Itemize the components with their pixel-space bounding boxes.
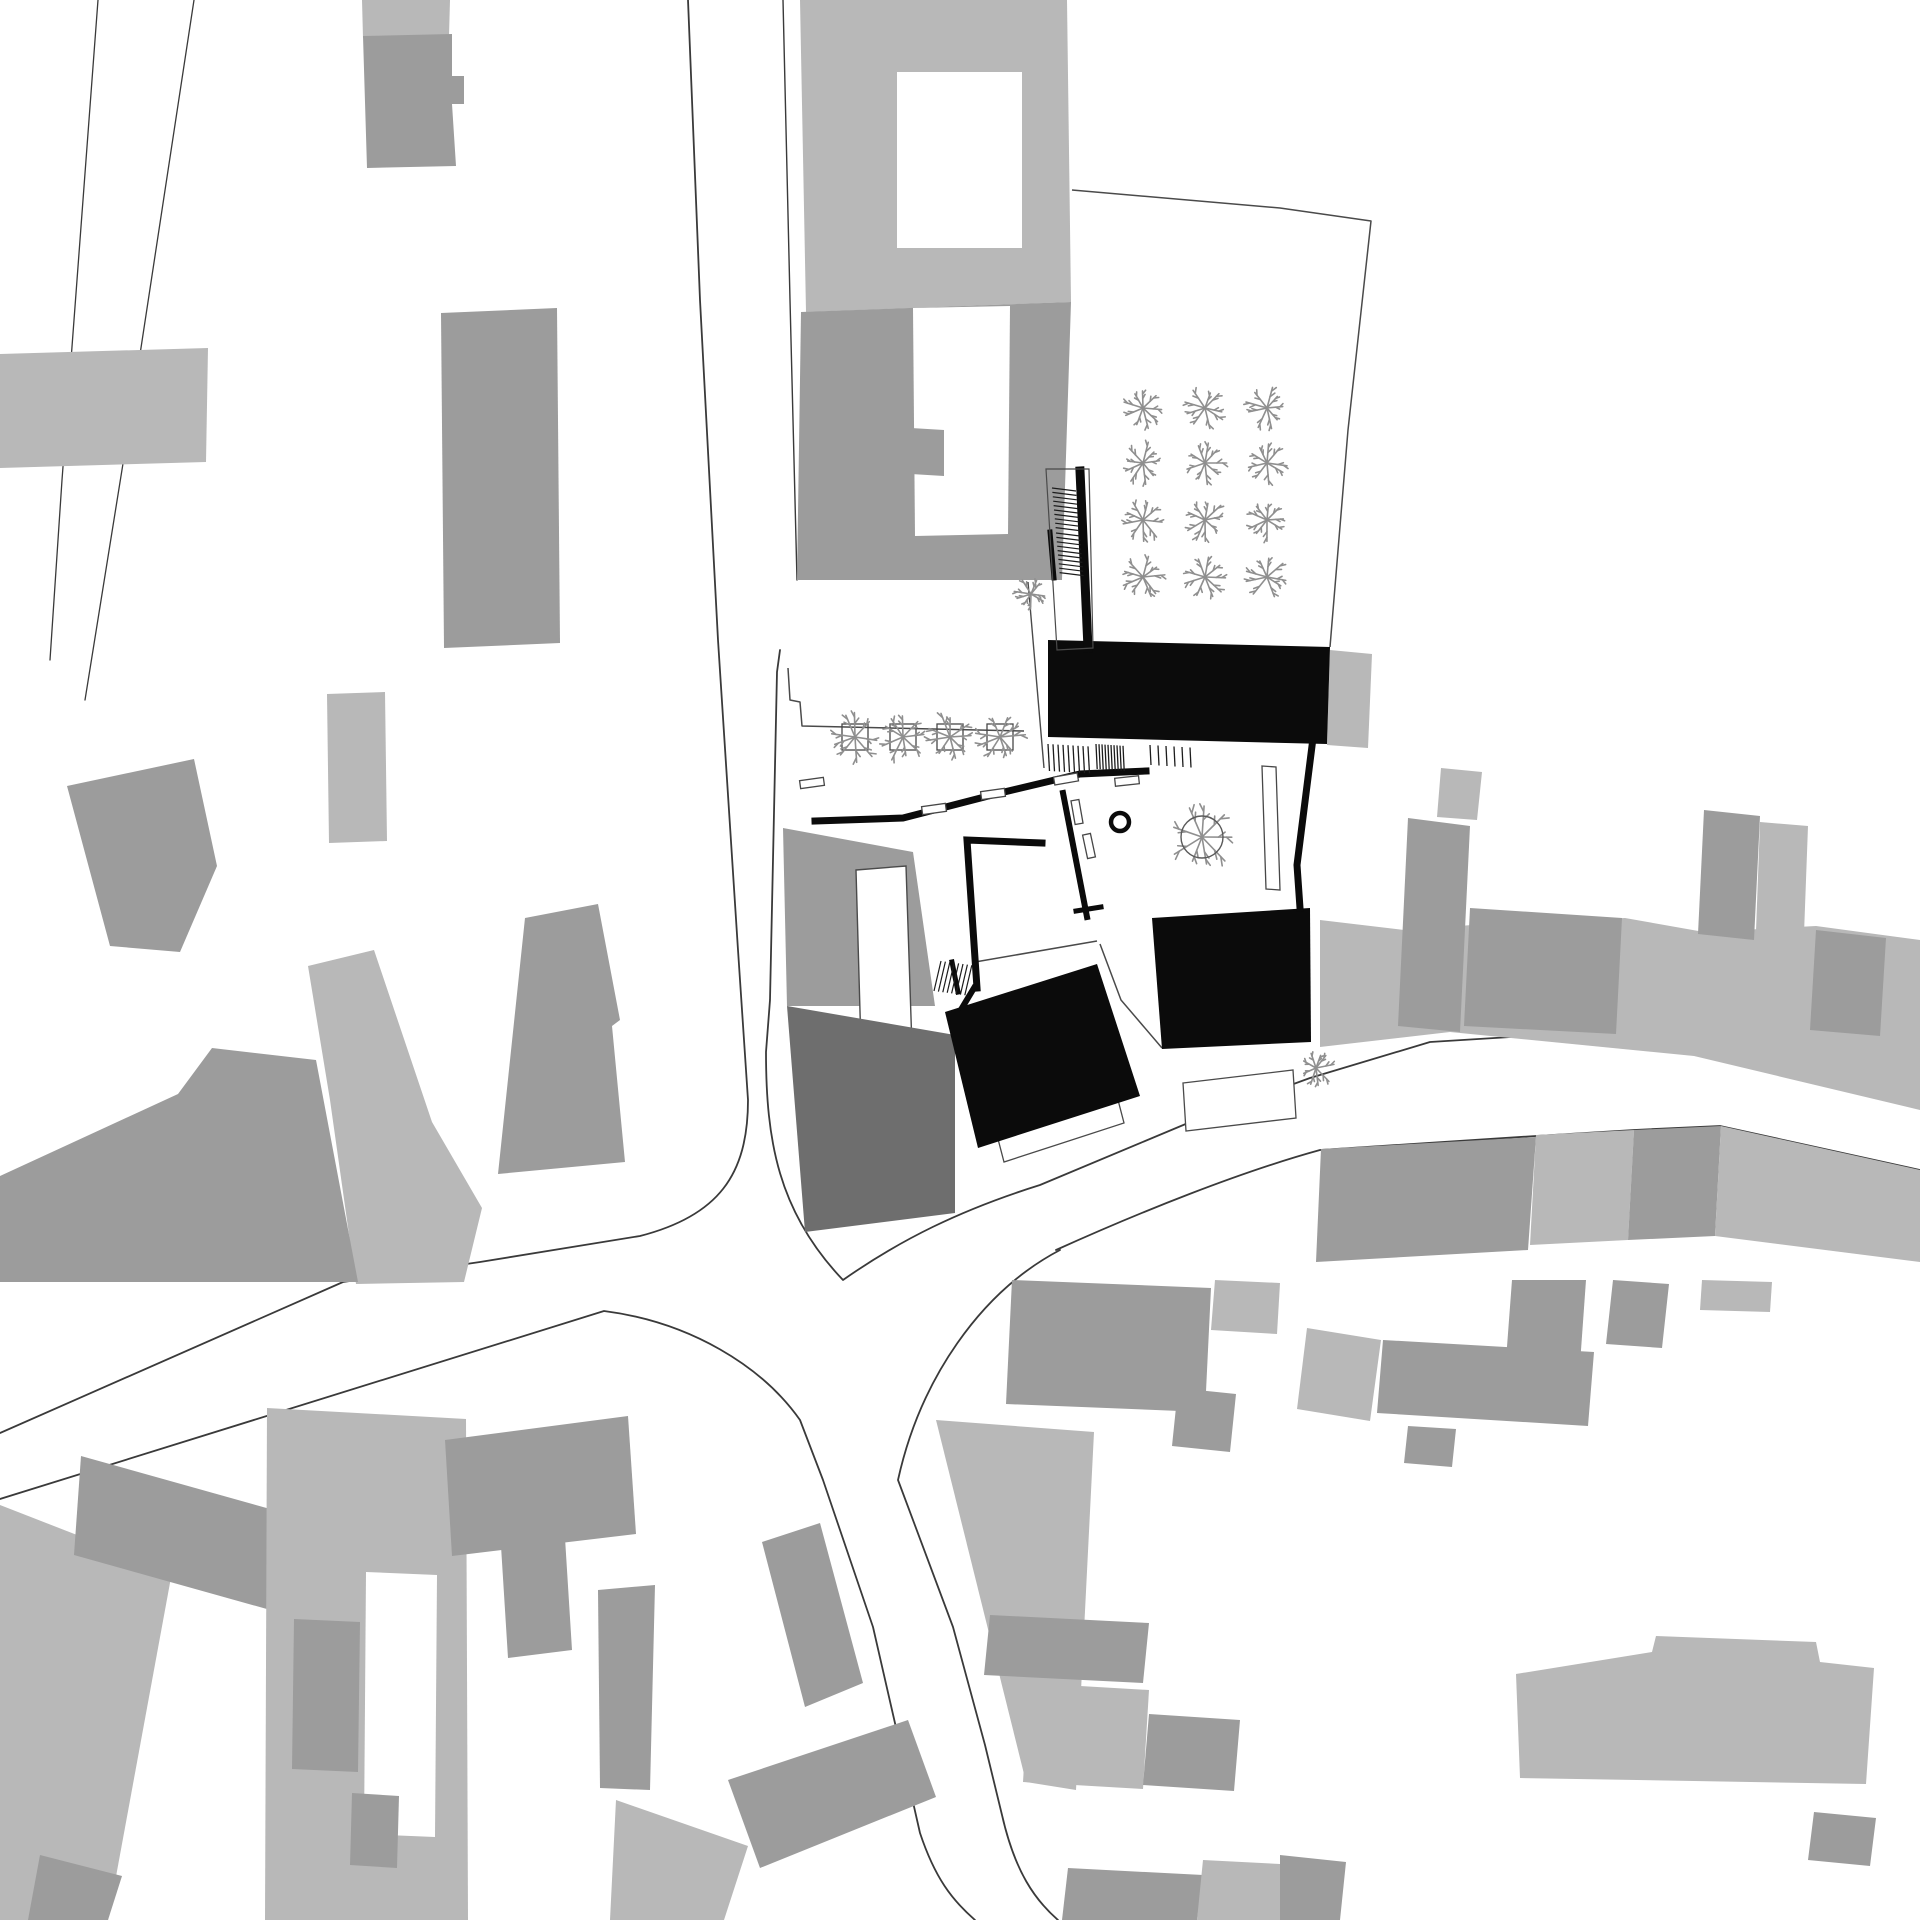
hall-stairs-middle-tread bbox=[1102, 744, 1103, 769]
tree-twig bbox=[1205, 442, 1208, 447]
tree-twig bbox=[1146, 501, 1147, 506]
tree-twig bbox=[1035, 579, 1036, 583]
plaza-north-boundary bbox=[788, 668, 1024, 731]
tree-twig bbox=[1252, 463, 1257, 465]
nw-horizontal-light-slab bbox=[0, 348, 208, 468]
hall-stairs-middle bbox=[1096, 744, 1124, 771]
tree-twig bbox=[993, 748, 994, 754]
tree-twig bbox=[1250, 455, 1255, 456]
sw-courtyard-medium-a bbox=[292, 1619, 360, 1772]
nw-small-light-rect bbox=[327, 692, 387, 843]
site-plan-drawing bbox=[0, 0, 1920, 1920]
se-medium-bottom bbox=[1062, 1868, 1203, 1920]
tree-twig bbox=[1315, 1082, 1317, 1086]
bench bbox=[1053, 773, 1078, 785]
hall-stairs-east-tread bbox=[1182, 747, 1183, 767]
planter-tree bbox=[924, 713, 972, 760]
tree-twig bbox=[1275, 581, 1280, 582]
tree-twig bbox=[1258, 504, 1259, 509]
tree-twig bbox=[1250, 405, 1256, 408]
tree-twig bbox=[888, 731, 894, 732]
center-courtyard-two bbox=[913, 306, 1010, 536]
tree-twig bbox=[893, 716, 894, 722]
ramp-hatch-lower-tread bbox=[1060, 573, 1084, 576]
se-light-lower bbox=[1023, 1683, 1149, 1789]
tree-twig bbox=[1146, 440, 1148, 446]
hall-stairs-west-tread bbox=[1073, 746, 1075, 773]
ne-light-small bbox=[1437, 768, 1482, 820]
tree-twig bbox=[1190, 465, 1195, 466]
tree-twig bbox=[883, 728, 889, 729]
ne-medium-big bbox=[1464, 908, 1622, 1034]
stair-plot-west-line bbox=[1028, 582, 1044, 768]
hall-stairs-middle-tread bbox=[1096, 744, 1097, 769]
tree-twig bbox=[1261, 446, 1262, 451]
tree-twig bbox=[1244, 579, 1250, 581]
tree-twig bbox=[1244, 403, 1250, 404]
hall-stairs-west-tread bbox=[1053, 744, 1055, 771]
west-path-line-a bbox=[50, 0, 98, 660]
tree-twig bbox=[1214, 408, 1218, 410]
hall-stairs-east-tread bbox=[1174, 747, 1175, 767]
bench bbox=[922, 803, 947, 814]
tree-twig bbox=[1214, 506, 1215, 512]
orchard-tree bbox=[1124, 440, 1160, 486]
tree-twig bbox=[1278, 463, 1283, 465]
hall-stairs-west-tread bbox=[1058, 745, 1060, 772]
tree-twig bbox=[1212, 469, 1217, 470]
south-road-medium-a bbox=[1316, 1137, 1536, 1262]
tree-twig bbox=[1206, 419, 1207, 425]
tree-twig bbox=[1016, 597, 1020, 598]
tree-twig bbox=[1226, 837, 1232, 843]
tree-twig bbox=[1004, 752, 1006, 757]
sebr-medium-slab bbox=[1606, 1280, 1669, 1348]
tree-twig bbox=[1209, 391, 1210, 395]
tree-twig bbox=[1145, 425, 1147, 430]
tree-twig bbox=[1135, 449, 1136, 455]
tree-twig bbox=[1215, 518, 1220, 519]
tree-twig bbox=[1268, 419, 1270, 425]
hall-stairs-west-tread bbox=[1083, 746, 1085, 773]
tree-twig bbox=[1124, 412, 1129, 414]
tree-twig bbox=[924, 737, 930, 740]
west-junction-streetwall bbox=[498, 904, 625, 1174]
hall-stairs-west bbox=[1048, 744, 1090, 773]
hall-stairs-west-tread bbox=[1068, 745, 1070, 772]
tree-twig bbox=[1280, 519, 1284, 521]
tree-twig bbox=[1250, 578, 1256, 579]
tree-twig bbox=[1219, 417, 1225, 418]
tree-twig bbox=[1145, 588, 1147, 594]
orchard-tree bbox=[1184, 557, 1227, 599]
tree-twig bbox=[1211, 593, 1212, 599]
se-light-bottom bbox=[1197, 1860, 1280, 1920]
tree-twig bbox=[1218, 589, 1224, 590]
hall-stairs-middle-tread bbox=[1099, 744, 1100, 769]
ne-medium-tower bbox=[1398, 818, 1470, 1032]
tree-twig bbox=[1275, 418, 1279, 419]
bench bbox=[1071, 799, 1083, 824]
tree-twig bbox=[1155, 576, 1161, 578]
tree-twig bbox=[1204, 507, 1206, 511]
tree-twig bbox=[1153, 591, 1159, 592]
tree-twig bbox=[1159, 520, 1164, 522]
tree-twig bbox=[1188, 405, 1194, 406]
tree-twig bbox=[1124, 468, 1129, 469]
orchard-tree bbox=[1247, 504, 1285, 542]
orchard-tree bbox=[1187, 442, 1228, 485]
tree-twig bbox=[1247, 525, 1252, 527]
hall-stairs-middle-tread bbox=[1120, 746, 1121, 771]
ne-medium-rightmost bbox=[1810, 930, 1886, 1036]
tree-twig bbox=[1273, 401, 1277, 402]
ne-light-pair bbox=[1756, 822, 1808, 934]
tree-twig bbox=[1033, 583, 1034, 587]
orchard-tree bbox=[1122, 500, 1164, 542]
hall-stairs-middle-tread bbox=[1117, 745, 1118, 770]
orchard-tree bbox=[1249, 443, 1288, 485]
se-medium-right bbox=[1143, 1714, 1240, 1791]
orchard-tree bbox=[1123, 555, 1166, 597]
nw-top-small-medium bbox=[363, 34, 464, 168]
tree-twig bbox=[944, 746, 945, 751]
tree-twig bbox=[869, 753, 876, 754]
hall-stairs-middle-tread bbox=[1108, 745, 1109, 770]
tree-twig bbox=[1219, 409, 1224, 411]
tree-twig bbox=[1200, 444, 1201, 449]
se-medium-arm bbox=[1172, 1388, 1236, 1452]
tree-twig bbox=[1183, 403, 1188, 405]
orchard-tree bbox=[1244, 558, 1285, 597]
tree-twig bbox=[927, 730, 933, 731]
sebr-medium-square bbox=[1808, 1812, 1876, 1866]
front-yard-east bbox=[1183, 1070, 1296, 1131]
tree-twig bbox=[1130, 516, 1135, 517]
nw-vertical-medium-slab bbox=[441, 308, 560, 648]
sebr-medium-l-horizontal bbox=[1377, 1340, 1594, 1426]
tree-twig bbox=[965, 727, 971, 728]
hall-stairs-east-tread bbox=[1158, 746, 1159, 766]
tree-twig bbox=[1252, 409, 1257, 410]
tree-twig bbox=[1125, 514, 1130, 515]
plaza-boundary-wall-east bbox=[1297, 746, 1312, 908]
orchard-tree bbox=[1185, 502, 1223, 542]
center-dark-building bbox=[787, 1006, 955, 1232]
tree-twig bbox=[902, 747, 905, 752]
tree-twig bbox=[1191, 516, 1196, 517]
tree-twig bbox=[1133, 534, 1134, 540]
sw-medium-northeast bbox=[445, 1416, 636, 1556]
planter-tree bbox=[831, 711, 879, 764]
orchard-tree bbox=[1244, 387, 1283, 430]
tree-twig bbox=[1190, 525, 1196, 526]
tree-twig bbox=[981, 735, 987, 739]
plaza-fountain bbox=[1111, 813, 1129, 831]
tree-twig bbox=[1260, 424, 1261, 430]
ramp-hatch-lower-tread bbox=[1059, 568, 1083, 571]
tree-twig bbox=[1128, 411, 1133, 412]
corner-tree bbox=[1013, 579, 1045, 610]
tree-twig bbox=[915, 723, 921, 724]
site-plan-stage bbox=[0, 0, 1920, 1920]
sw-courtyard-medium-b bbox=[350, 1793, 399, 1868]
nw-top-small-light bbox=[362, 0, 450, 38]
tree-twig bbox=[1122, 520, 1127, 523]
hall-stairs-west-tread bbox=[1078, 746, 1080, 773]
south-road-light-b bbox=[1530, 1130, 1634, 1245]
tree-twig bbox=[1247, 514, 1252, 515]
tree-twig bbox=[1143, 481, 1145, 487]
tree-twig bbox=[1128, 574, 1133, 576]
ne-medium-pair bbox=[1698, 810, 1760, 940]
tree-twig bbox=[1144, 506, 1145, 511]
sebr-light-square bbox=[1297, 1328, 1381, 1421]
south-road-medium-c bbox=[1628, 1126, 1721, 1240]
terrace-plot-line bbox=[975, 941, 1097, 962]
sw-medium-arm bbox=[501, 1538, 572, 1658]
south-road-light-d bbox=[1715, 1126, 1920, 1262]
tree-twig bbox=[1269, 425, 1271, 431]
north-road-east-sidewalk bbox=[783, 0, 797, 580]
street-tree bbox=[1304, 1052, 1335, 1087]
tree-twig bbox=[885, 740, 891, 741]
black-east-building bbox=[1152, 908, 1311, 1049]
sebr-medium-corner bbox=[1280, 1855, 1346, 1920]
hall-stairs-west-tread bbox=[1088, 746, 1090, 773]
tree-twig bbox=[1277, 576, 1282, 578]
hall-stairs-west-tread bbox=[1048, 744, 1050, 771]
sebr-light-small bbox=[1700, 1280, 1772, 1312]
tree-twig bbox=[1185, 412, 1190, 413]
nw-mid-medium-house bbox=[67, 759, 217, 952]
bench bbox=[800, 777, 825, 788]
se-medium-band bbox=[984, 1615, 1149, 1683]
tree-twig bbox=[1019, 596, 1023, 597]
tree-twig bbox=[911, 728, 917, 729]
tree-twig bbox=[1205, 502, 1207, 506]
se-light-small-top bbox=[1211, 1280, 1280, 1334]
bench bbox=[1115, 776, 1140, 786]
tree-twig bbox=[1186, 514, 1191, 515]
tree-twig bbox=[975, 743, 982, 744]
context-buildings-layer bbox=[0, 0, 1920, 1920]
hall-stairs-middle-tread bbox=[1114, 745, 1115, 770]
wedge-medium-band bbox=[728, 1720, 936, 1868]
tree-twig bbox=[1192, 805, 1194, 814]
bench bbox=[1083, 833, 1096, 858]
hall-stairs-east bbox=[1150, 745, 1191, 768]
tree-twig bbox=[1279, 527, 1284, 528]
tree-twig bbox=[1220, 818, 1229, 819]
tree-twig bbox=[1127, 520, 1132, 522]
hall-stairs-east-tread bbox=[1150, 745, 1151, 765]
tree-twig bbox=[1197, 850, 1198, 857]
wedge-light-corner bbox=[610, 1800, 748, 1920]
tree-twig bbox=[1324, 1053, 1325, 1057]
tree-twig bbox=[1123, 572, 1128, 574]
plaza-tree bbox=[1174, 804, 1233, 866]
orchard-tree bbox=[1124, 390, 1162, 430]
bench bbox=[981, 788, 1006, 799]
tree-twig bbox=[1013, 592, 1017, 594]
hall-stairs-middle-tread bbox=[1111, 745, 1112, 770]
hall-side-light-small bbox=[1327, 650, 1372, 748]
tree-twig bbox=[1136, 473, 1137, 479]
tree-twig bbox=[1184, 572, 1190, 573]
tree-twig bbox=[1002, 747, 1004, 752]
tree-twig bbox=[1140, 417, 1141, 422]
ramp-black-bar-main bbox=[1080, 471, 1088, 648]
tree-twig bbox=[1135, 500, 1136, 506]
tree-twig bbox=[873, 738, 879, 740]
tree-twig bbox=[1193, 458, 1198, 459]
planter-tree bbox=[880, 715, 925, 763]
courtyard-l-wall bbox=[967, 840, 1042, 988]
hall-stairs-west-tread bbox=[1063, 745, 1065, 772]
hall-stairs-middle-tread bbox=[1123, 746, 1124, 771]
center-courtyard-tab bbox=[911, 428, 944, 476]
tree-twig bbox=[952, 754, 955, 760]
orchard-tree bbox=[1183, 388, 1225, 429]
tree-twig bbox=[1247, 410, 1252, 411]
sebr-long-light-building bbox=[1516, 1636, 1874, 1784]
tree-twig bbox=[1201, 449, 1203, 454]
tree-twig bbox=[1254, 458, 1259, 459]
tree-twig bbox=[1274, 449, 1275, 454]
tree-twig bbox=[1312, 1052, 1313, 1056]
hall-stairs-middle-tread bbox=[1105, 745, 1106, 770]
plaza-boundary-wall-west bbox=[815, 771, 1146, 821]
hall-stairs-east-tread bbox=[1190, 748, 1191, 768]
hall-stairs-east-tread bbox=[1166, 746, 1167, 766]
terrace-wall-tick bbox=[1076, 907, 1101, 911]
plaza-long-bench bbox=[1262, 766, 1280, 890]
sw-medium-vertical-slab bbox=[598, 1585, 655, 1790]
sebr-medium-l-leg bbox=[1404, 1426, 1456, 1467]
tree-twig bbox=[1185, 528, 1191, 529]
black-hall bbox=[1048, 640, 1330, 744]
sw-medium-streetwall-band bbox=[0, 1048, 358, 1282]
tree-twig bbox=[1200, 804, 1204, 812]
tree-twig bbox=[1150, 396, 1151, 401]
tree-twig bbox=[1195, 388, 1196, 394]
tree-twig bbox=[1145, 555, 1147, 560]
tree-twig bbox=[1201, 587, 1203, 592]
tree-twig bbox=[1214, 585, 1220, 586]
center-north-courtyard bbox=[897, 72, 1022, 248]
